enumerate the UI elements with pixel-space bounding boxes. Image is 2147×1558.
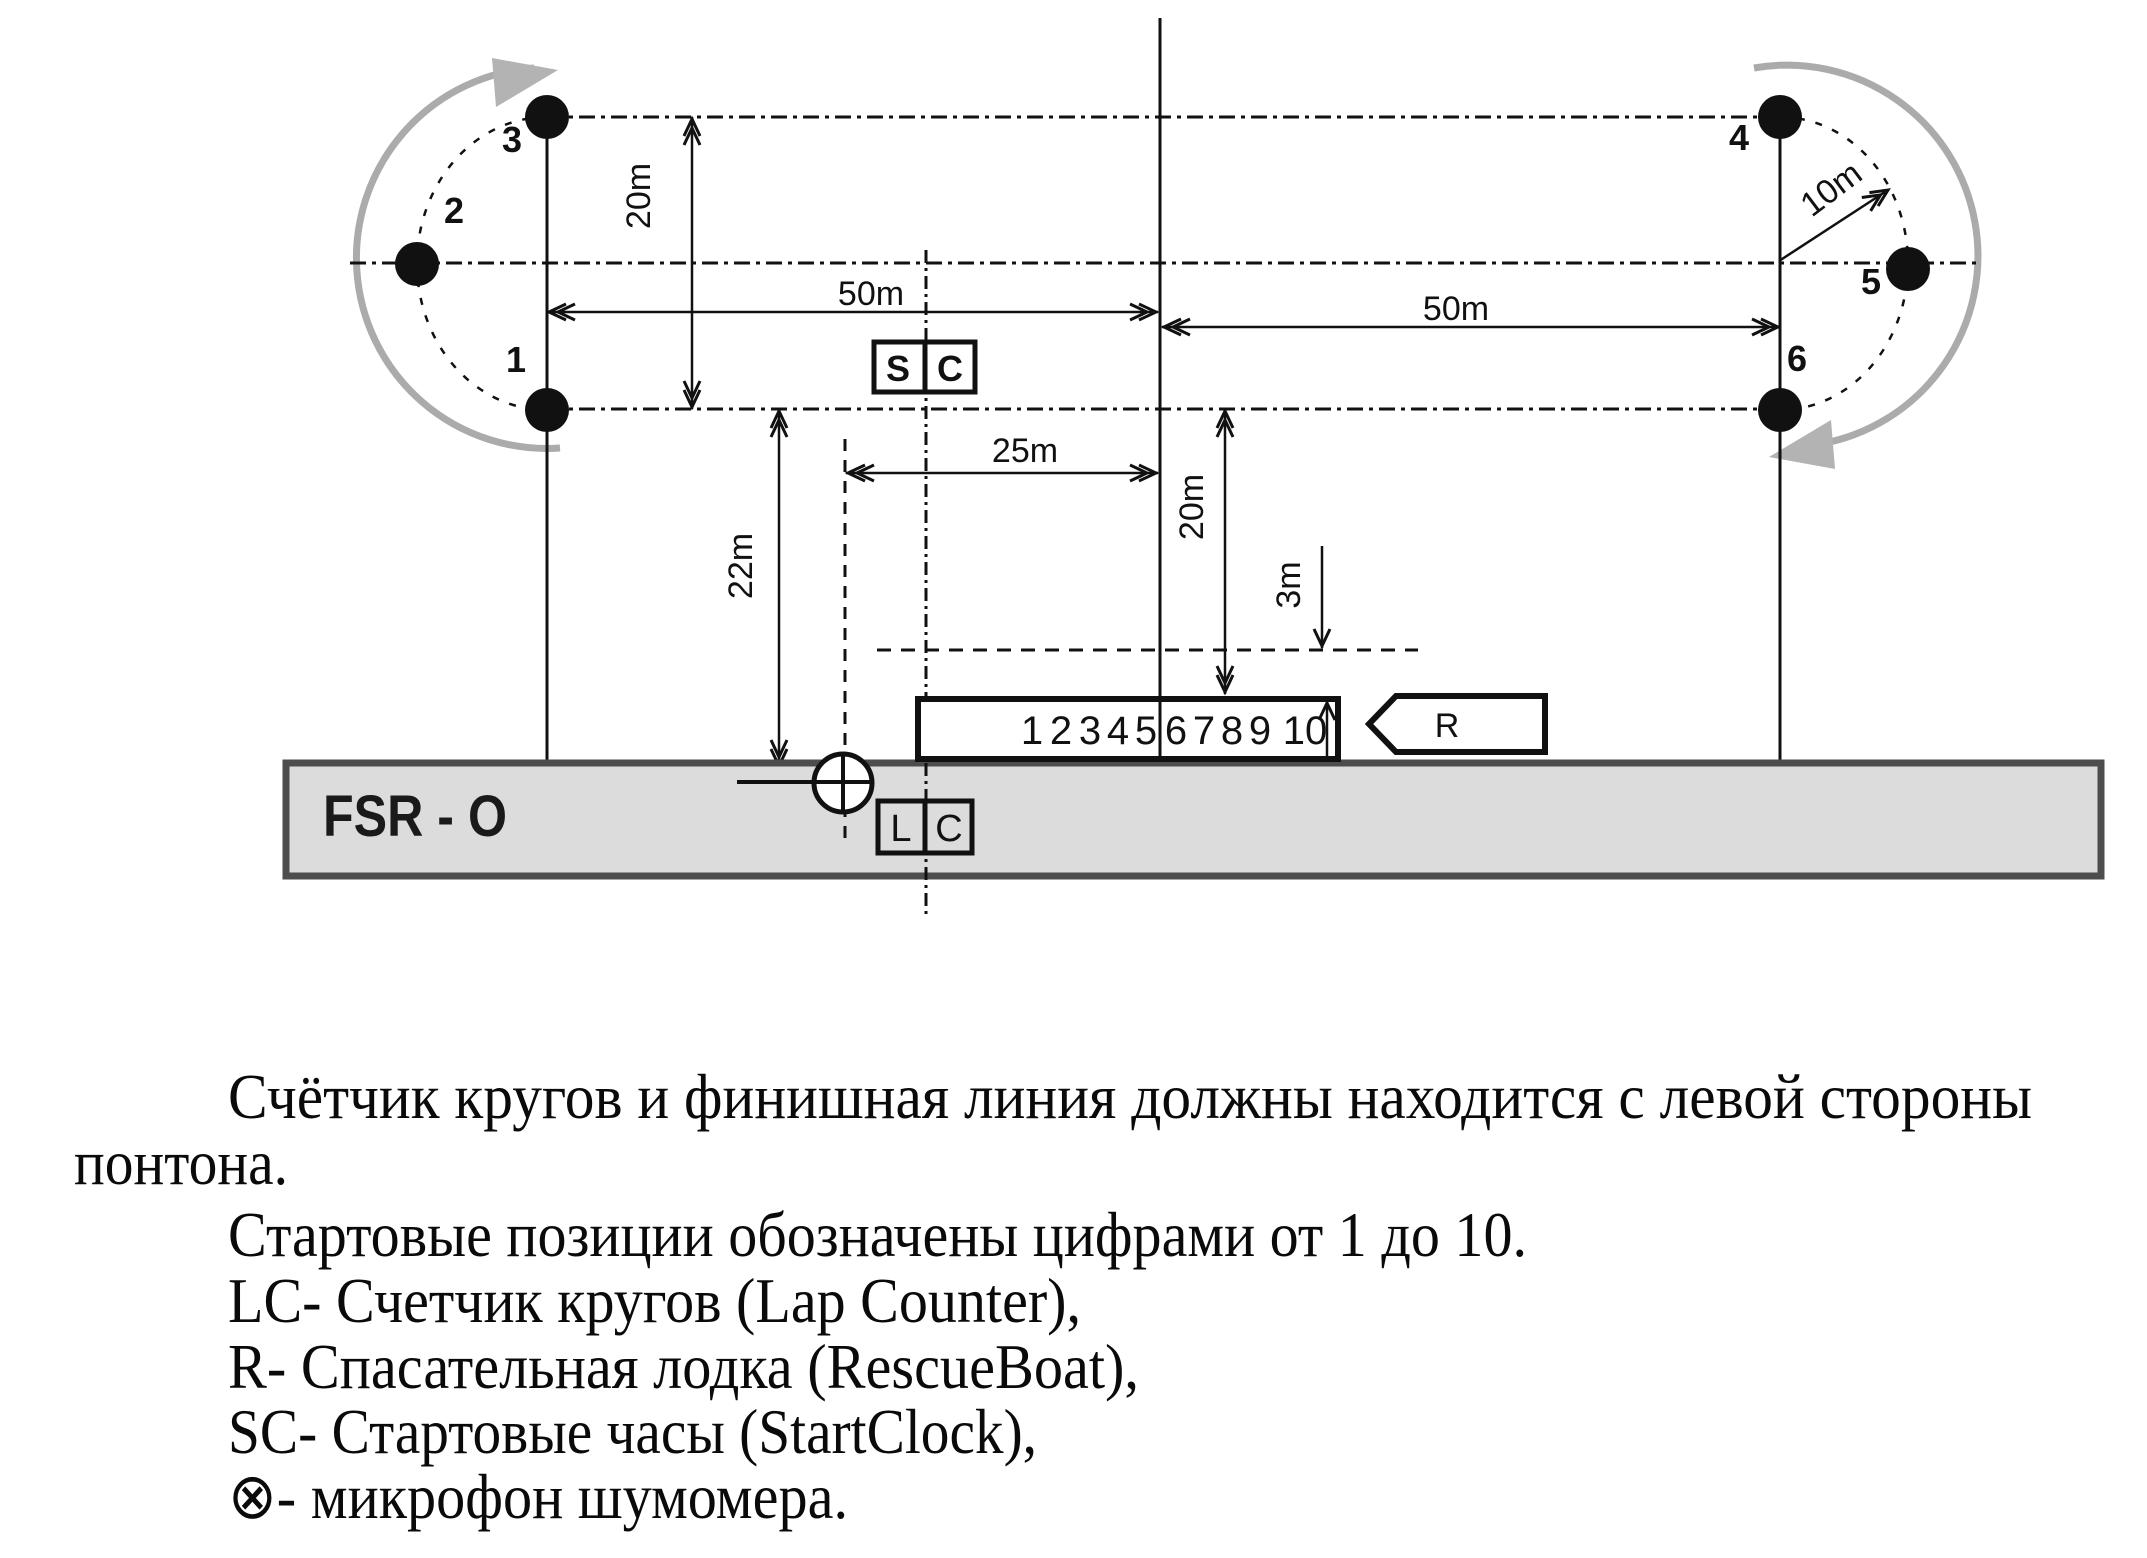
svg-text:Счётчик кругов и финишная лини: Счётчик кругов и финишная линия должны н… xyxy=(228,1061,2032,1132)
svg-text:2: 2 xyxy=(1050,709,1072,753)
svg-text:2: 2 xyxy=(444,190,464,231)
svg-text:C: C xyxy=(935,808,962,850)
svg-text:9: 9 xyxy=(1249,709,1271,753)
svg-text:50m: 50m xyxy=(838,275,904,313)
svg-text:4: 4 xyxy=(1107,709,1129,753)
svg-text:L: L xyxy=(890,808,911,850)
svg-text:50m: 50m xyxy=(1423,290,1489,328)
svg-text:6: 6 xyxy=(1787,338,1807,379)
svg-text:6: 6 xyxy=(1165,709,1187,753)
svg-text:5: 5 xyxy=(1135,709,1157,753)
svg-text:понтона.: понтона. xyxy=(74,1127,288,1198)
svg-text:Стартовые позиции обозначены ц: Стартовые позиции обозначены цифрами от … xyxy=(228,1199,1527,1270)
svg-text:R: R xyxy=(1435,707,1460,745)
svg-text:3m: 3m xyxy=(1270,561,1308,608)
svg-text:22m: 22m xyxy=(722,533,760,599)
svg-text:8: 8 xyxy=(1221,709,1243,753)
svg-text:SC- Стартовые часы (StartClock: SC- Стартовые часы (StartClock), xyxy=(228,1396,1037,1467)
svg-text:3: 3 xyxy=(502,119,522,160)
svg-text:25m: 25m xyxy=(992,432,1058,470)
svg-text:7: 7 xyxy=(1193,709,1215,753)
svg-text:R- Спасательная лодка (RescueB: R- Спасательная лодка (RescueBoat), xyxy=(228,1331,1139,1402)
svg-text:4: 4 xyxy=(1729,117,1749,158)
svg-text:FSR - O: FSR - O xyxy=(323,784,507,849)
svg-text:LC- Счетчик кругов (Lap Counte: LC- Счетчик кругов (Lap Counter), xyxy=(228,1265,1081,1336)
svg-text:5: 5 xyxy=(1861,261,1881,302)
svg-text:C: C xyxy=(937,348,963,389)
svg-text:⊗- микрофон шумомера.: ⊗- микрофон шумомера. xyxy=(228,1461,848,1532)
svg-text:20m: 20m xyxy=(1173,474,1211,540)
svg-text:S: S xyxy=(886,348,910,389)
svg-text:1: 1 xyxy=(506,339,526,380)
svg-text:20m: 20m xyxy=(620,163,658,229)
svg-text:3: 3 xyxy=(1079,709,1101,753)
svg-text:1: 1 xyxy=(1021,709,1043,753)
